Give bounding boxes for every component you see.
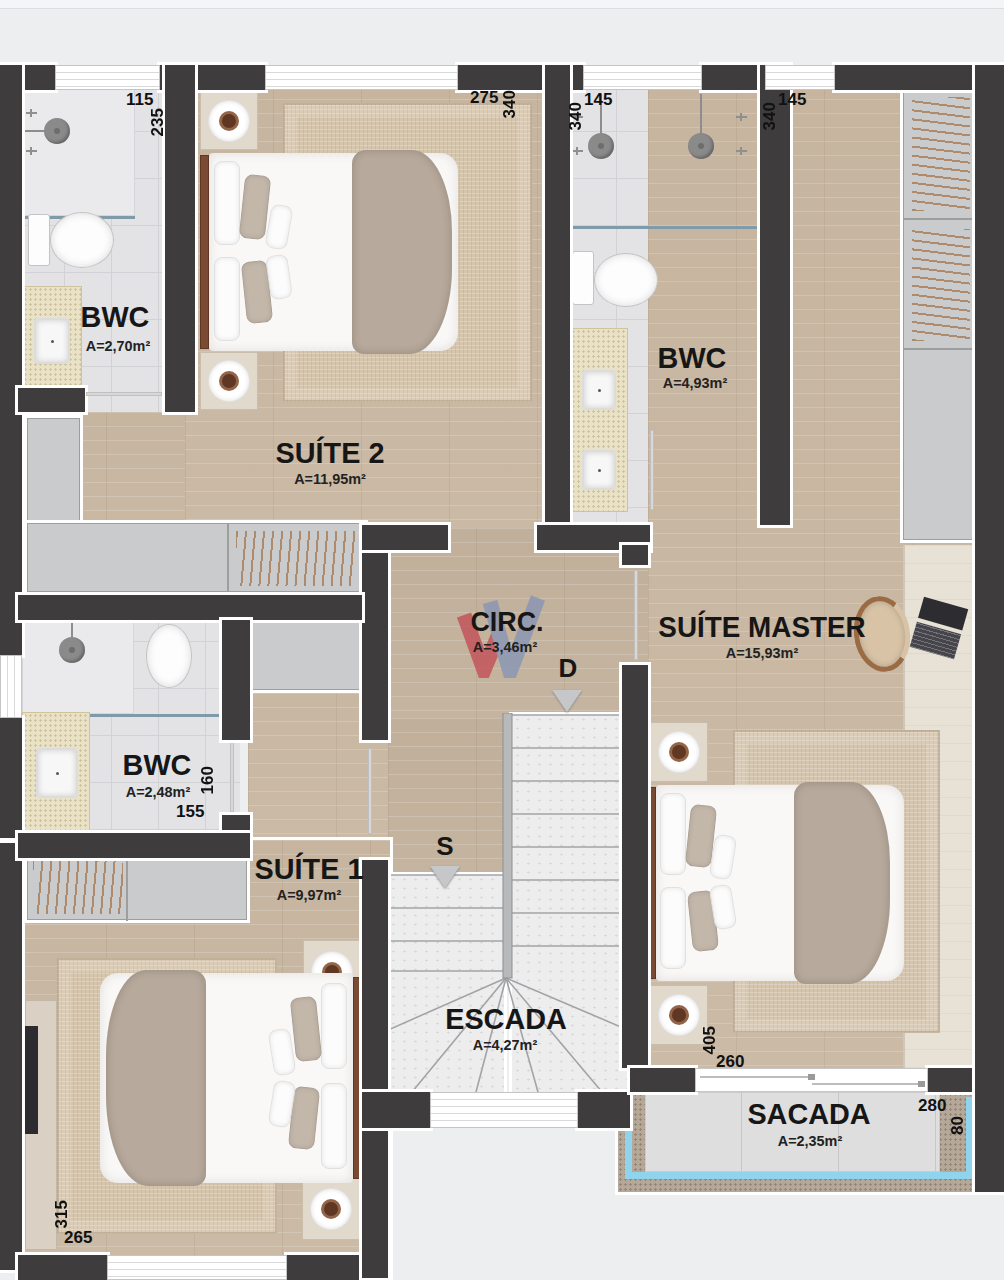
room-area-bwc3: A=2,48m² <box>126 783 190 800</box>
wall-segment <box>835 65 985 90</box>
dim-suite2-height: 340 <box>500 90 520 118</box>
sliding-door-panel <box>700 1076 812 1078</box>
hanger-rail-icon <box>33 853 123 914</box>
dim-bwc2-height: 340 <box>566 102 586 130</box>
window <box>107 1255 287 1280</box>
pillow <box>660 887 686 969</box>
room-area-suite-master: A=15,93m² <box>726 644 798 661</box>
wall-segment <box>702 65 765 90</box>
room-label-suite2: SUÍTE 2 <box>276 436 385 470</box>
stair-marker-up: S <box>436 831 453 862</box>
window <box>0 655 22 718</box>
wardrobe-suite2-bottom <box>27 523 365 592</box>
background-edge-line <box>0 0 1004 9</box>
shower-valve-icon <box>26 150 37 152</box>
sink <box>582 370 616 410</box>
window <box>430 1092 578 1128</box>
room-label-bwc1: BWC <box>81 300 150 334</box>
shower-head-icon <box>59 637 85 663</box>
shower-head-icon <box>44 118 70 144</box>
pillow <box>321 983 347 1069</box>
wall-segment <box>622 665 648 1068</box>
dim-bwc1-height: 235 <box>148 108 168 136</box>
shower-arm <box>700 94 702 136</box>
room-area-escada: A=4,27m² <box>473 1036 537 1053</box>
room-area-bwc1: A=2,70m² <box>86 337 150 354</box>
window <box>765 65 835 90</box>
nightstand <box>200 352 258 410</box>
sliding-door-panel <box>812 1083 924 1085</box>
window <box>55 65 160 90</box>
room-label-escada: ESCADA <box>445 1002 567 1036</box>
triangle-down-icon <box>552 690 582 712</box>
blanket <box>106 970 206 1186</box>
wall-segment <box>18 595 362 620</box>
bedside-lamp-icon <box>659 995 699 1035</box>
wall-segment <box>362 860 388 1278</box>
dim-suite1-height: 315 <box>52 1200 72 1228</box>
dim-bwc2-width: 145 <box>584 90 612 110</box>
bed-suite-master <box>646 785 904 981</box>
hanger-rail-icon <box>912 97 970 211</box>
sink <box>34 318 70 364</box>
room-area-circ: A=3,46m² <box>473 638 537 655</box>
wall-segment <box>630 1068 695 1092</box>
shower-head-icon <box>688 133 714 159</box>
room-label-bwc2: BWC <box>658 341 727 375</box>
door-handle <box>918 1081 925 1087</box>
dim-suite2-width: 275 <box>470 88 498 108</box>
door-leaf <box>230 742 234 812</box>
bedside-lamp-icon <box>209 101 249 141</box>
room-area-suite1: A=9,97m² <box>277 886 341 903</box>
wall-segment <box>18 65 55 90</box>
dim-sacada-width: 280 <box>918 1096 946 1116</box>
dim-suite-master-height: 340 <box>760 102 780 130</box>
blanket <box>352 150 452 354</box>
sink <box>582 450 616 490</box>
bedside-lamp-icon <box>311 1189 351 1229</box>
wall-segment <box>975 65 1004 1192</box>
shower-head-icon <box>588 133 614 159</box>
wall-segment <box>18 1255 107 1280</box>
wall-segment <box>578 1092 630 1128</box>
room-area-suite2: A=11,95m² <box>294 470 366 487</box>
toilet-cistern <box>572 251 594 305</box>
dim-bwc3-width: 155 <box>176 802 204 822</box>
shower-tray <box>22 88 135 216</box>
pillow <box>214 161 240 245</box>
bedside-lamp-icon <box>659 732 699 772</box>
wardrobe-divider <box>904 348 978 350</box>
door-leaf <box>368 748 372 834</box>
wall-segment <box>165 65 195 412</box>
closet-corridor <box>250 618 362 690</box>
bed-suite2 <box>200 153 458 351</box>
wall-segment <box>0 718 22 838</box>
room-label-bwc3: BWC <box>123 748 192 782</box>
stair-rail <box>503 713 512 978</box>
glass-partition <box>570 226 760 229</box>
hanger-rail-icon <box>912 229 970 341</box>
pillow <box>214 257 240 341</box>
dim-suite1-width: 265 <box>64 1228 92 1248</box>
bed-suite1 <box>100 973 363 1183</box>
bedside-lamp-icon <box>209 361 249 401</box>
wardrobe-suite2-left <box>27 418 80 523</box>
wall-segment <box>222 620 250 740</box>
pillow <box>321 1083 347 1169</box>
blanket <box>794 782 890 984</box>
shower-valve-icon <box>26 112 37 114</box>
nightstand <box>650 722 708 782</box>
wall-segment <box>760 65 790 525</box>
wardrobe-divider <box>227 524 229 593</box>
door-leaf <box>634 570 638 660</box>
triangle-down-icon <box>430 866 460 888</box>
nightstand <box>302 1178 360 1240</box>
pillow <box>660 793 686 875</box>
shower-valve-icon <box>572 150 583 152</box>
floor-plan: BWC A=2,70m² SUÍTE 2 A=11,95m² BWC A=4,9… <box>0 0 1004 1280</box>
sink <box>36 748 78 798</box>
window <box>583 65 702 90</box>
window <box>265 65 458 90</box>
wall-segment <box>362 525 448 550</box>
dim-suite-master-length: 405 <box>700 1026 720 1054</box>
toilet-bowl <box>50 212 114 268</box>
door-leaf <box>86 392 162 396</box>
dim-bwc3-height: 160 <box>198 766 218 794</box>
wall-segment <box>0 65 22 655</box>
hanger-rail-icon <box>236 531 358 586</box>
nightstand <box>200 92 258 150</box>
wall-segment <box>18 388 85 412</box>
wall-segment <box>622 545 648 565</box>
toilet-bowl <box>146 624 192 688</box>
room-label-suite1: SUÍTE 1 <box>255 852 364 886</box>
toilet-cistern <box>28 214 50 266</box>
room-area-bwc2: A=4,93m² <box>663 374 727 391</box>
wardrobe-divider <box>904 218 978 220</box>
wall-segment <box>362 528 388 740</box>
dim-suite-master-width: 145 <box>778 90 806 110</box>
tv <box>25 1026 38 1134</box>
door-leaf <box>650 430 654 510</box>
stair-marker-down: D <box>559 653 578 684</box>
room-label-suite-master: SUÍTE MASTER <box>658 611 865 644</box>
wall-segment <box>362 1092 430 1128</box>
shower-valve-icon <box>736 116 747 118</box>
room-label-sacada: SACADA <box>747 1097 870 1131</box>
door-handle <box>808 1074 815 1080</box>
wardrobe-suite-master <box>903 88 977 540</box>
wall-segment <box>18 833 250 858</box>
wall-segment <box>0 843 22 1270</box>
dim-bwc1-width: 115 <box>126 90 153 110</box>
dim-suite-master-door: 260 <box>716 1052 744 1072</box>
headboard <box>200 155 209 349</box>
room-label-circ: CIRC. <box>470 606 543 638</box>
toilet-bowl <box>594 253 658 307</box>
shower-valve-icon <box>736 150 747 152</box>
dim-sacada-height: 80 <box>948 1116 968 1135</box>
room-area-sacada: A=2,35m² <box>778 1132 842 1149</box>
wall-segment <box>545 65 570 528</box>
